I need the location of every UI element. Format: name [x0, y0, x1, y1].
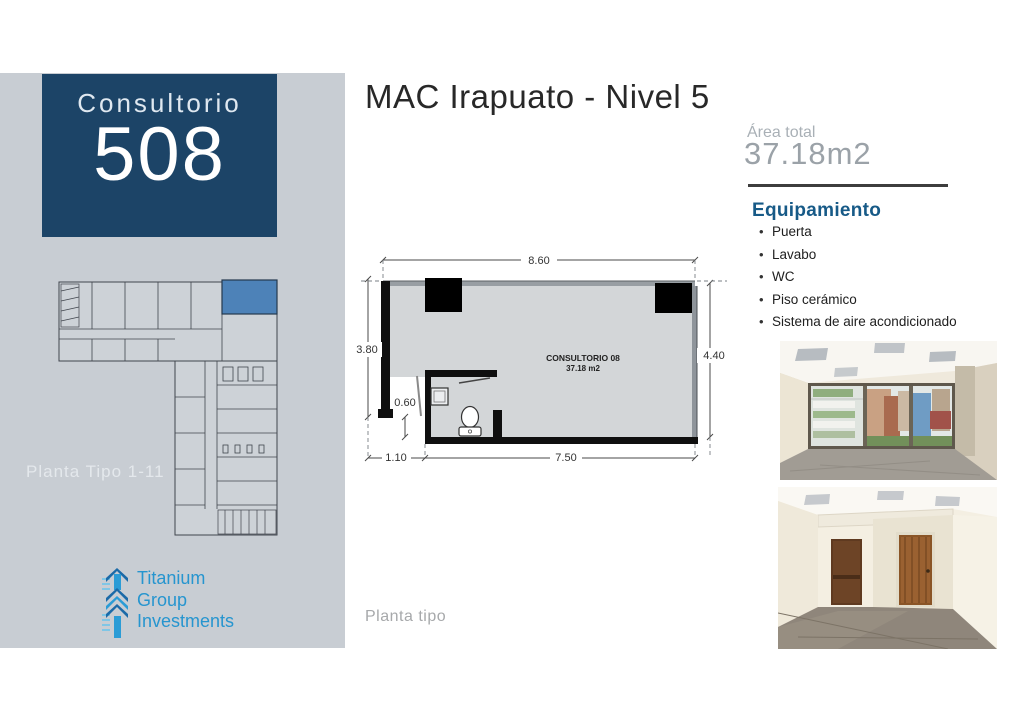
page-title: MAC Irapuato - Nivel 5 [365, 78, 710, 116]
mini-floorplan [55, 277, 280, 537]
wood-cabinet [831, 539, 862, 605]
logo-line-3: Investments [137, 611, 234, 633]
equipment-item: Lavabo [758, 247, 1024, 262]
equipment-list: Puerta Lavabo WC Piso cerámico Sistema d… [758, 224, 1024, 337]
interior-render-doors-photo [778, 487, 997, 649]
room-label: CONSULTORIO 08 [546, 353, 620, 363]
logo-text: Titanium Group Investments [137, 568, 234, 633]
company-logo: Titanium Group Investments [100, 568, 234, 640]
dim-bottom: 7.50 [555, 452, 576, 464]
unit-floorplan: 8.60 3.80 4.40 1.10 7.50 0.60 CONSULTORI… [353, 243, 731, 478]
dim-step: 0.60 [394, 397, 415, 409]
unit-card-number: 508 [93, 119, 226, 191]
logo-line-2: Group [137, 590, 234, 612]
equipment-item-label: Puerta [772, 224, 812, 239]
equipment-item: Sistema de aire acondicionado [758, 314, 1024, 329]
equipment-item-label: Lavabo [772, 247, 816, 262]
unit-card: Consultorio 508 [42, 74, 277, 237]
dim-entry: 1.10 [385, 452, 406, 464]
dim-right: 4.40 [703, 350, 724, 362]
area-total-value: 37.18m2 [744, 136, 872, 172]
building-chevrons-icon [100, 568, 134, 640]
dim-top: 8.60 [528, 255, 549, 267]
wood-door [896, 532, 935, 607]
sink-icon [431, 388, 448, 405]
floorplan-column [425, 278, 462, 312]
floorplan-column [655, 283, 692, 313]
interior-render-window-photo [780, 341, 997, 480]
equipment-item: WC [758, 269, 1024, 284]
logo-line-1: Titanium [137, 568, 234, 590]
equipment-item: Puerta [758, 224, 1024, 239]
equipment-heading: Equipamiento [752, 200, 881, 222]
dim-left: 3.80 [356, 344, 377, 356]
room-area-label: 37.18 m2 [566, 364, 600, 373]
sidebar: Consultorio 508 [0, 73, 345, 648]
floorplan-caption: Planta tipo [365, 608, 446, 626]
equipment-item-label: Piso cerámico [772, 292, 857, 307]
equipment-item: Piso cerámico [758, 292, 1024, 307]
mini-floorplan-caption: Planta Tipo 1-11 [26, 462, 165, 482]
page: Consultorio 508 [0, 0, 1024, 724]
equipment-item-label: WC [772, 269, 795, 284]
mini-floorplan-highlighted-unit [222, 280, 277, 314]
equipment-item-label: Sistema de aire acondicionado [772, 314, 957, 329]
divider-line [748, 184, 948, 187]
